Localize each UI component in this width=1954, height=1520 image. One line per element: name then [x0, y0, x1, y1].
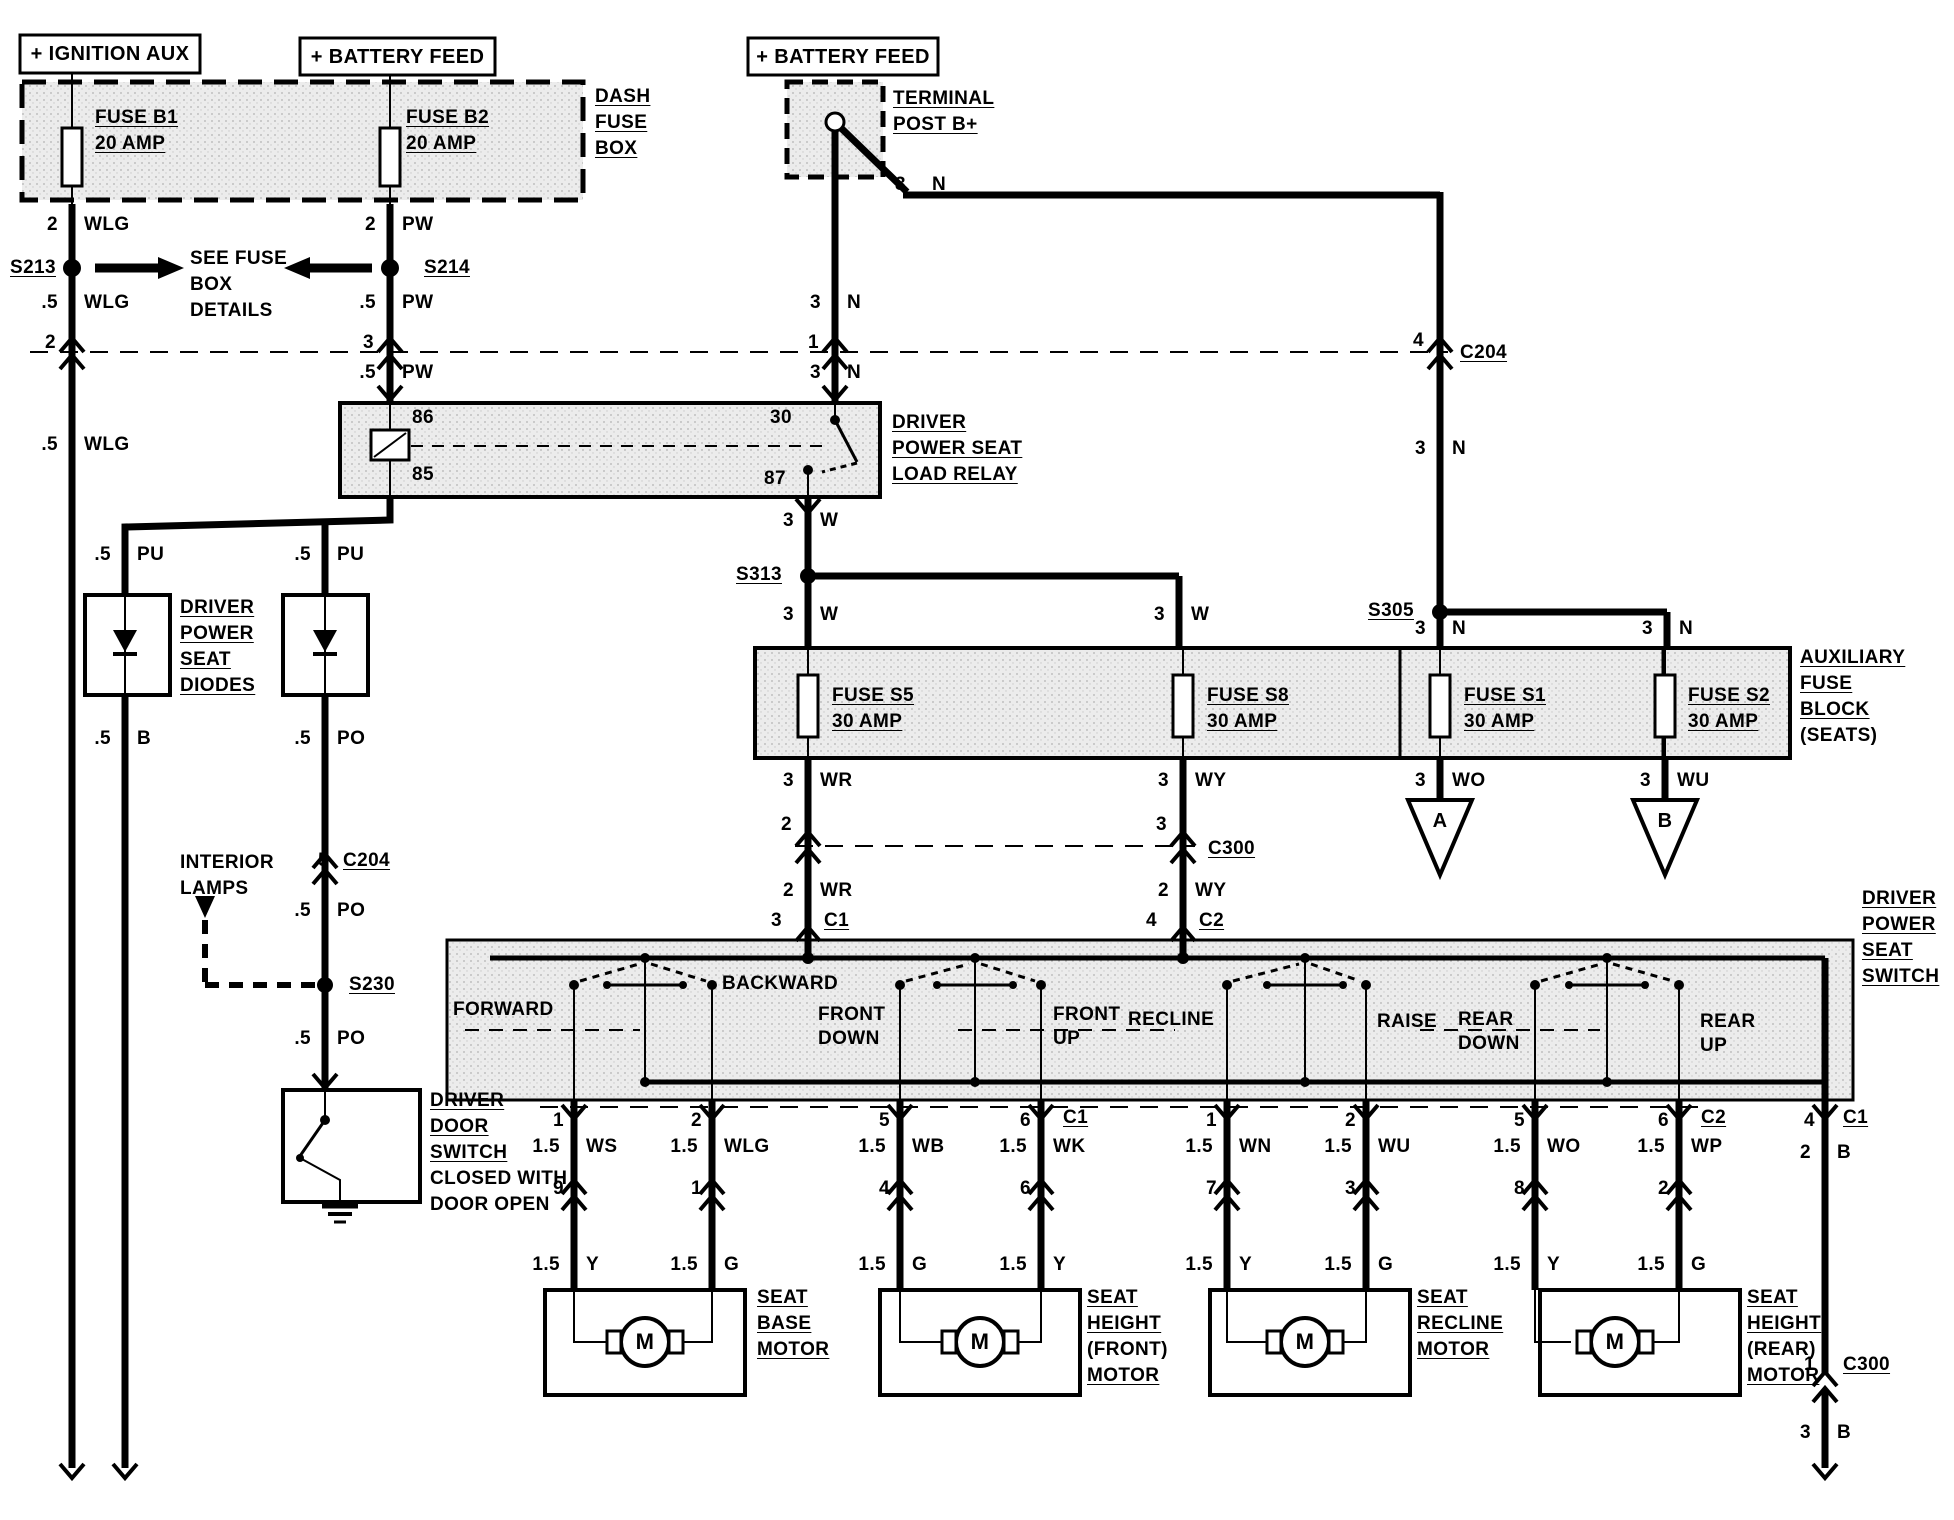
connector-c1-top: C1 [824, 908, 849, 934]
battery-feed-source-1: + BATTERY FEED [300, 38, 495, 75]
connector-c204: C204 [1460, 340, 1507, 366]
pin-b-c300: 1 [1775, 1352, 1815, 1378]
motor-3-symbol: M [1291, 1329, 1319, 1355]
wire-label: 1.5Y [945, 1252, 1066, 1278]
pin-c2-1: 1 [1177, 1108, 1217, 1134]
splice-s214: S214 [424, 255, 470, 281]
motor-2-symbol: M [966, 1329, 994, 1355]
interior-lamps-label: INTERIOR LAMPS [180, 850, 274, 902]
pin-c1-1: 1 [524, 1108, 564, 1134]
wire-label: 3WR [712, 768, 852, 794]
pin-c1-top: 3 [742, 908, 782, 934]
wire-label: 1.5WLG [616, 1134, 770, 1160]
relay-pin-87: 87 [764, 466, 786, 492]
wire-label: 1.5G [1583, 1252, 1706, 1278]
wire-label: 1.5Y [1439, 1252, 1560, 1278]
connector-c1-bottom: C1 [1063, 1105, 1088, 1131]
relay-pin-85: 85 [412, 462, 434, 488]
wire-label: 3WY [1087, 768, 1226, 794]
switch-pos-recline: RECLINE [1128, 1008, 1223, 1032]
wire-label: 3W [712, 602, 838, 628]
pin-c2-5: 5 [1485, 1108, 1525, 1134]
fuse-s2-label: FUSE S2 30 AMP [1688, 683, 1770, 735]
wire-label: .5PO [229, 1026, 365, 1052]
relay-label: DRIVER POWER SEAT LOAD RELAY [892, 410, 1022, 488]
pin-mid-4: 4 [850, 1176, 890, 1202]
wire-label: 3N [739, 360, 861, 386]
wire-label: 1.5WB [804, 1134, 944, 1160]
pin-c2-6: 6 [1629, 1108, 1669, 1134]
wire-label: 1.5WU [1270, 1134, 1410, 1160]
pin-mid-8: 8 [1485, 1176, 1525, 1202]
wire-label: .5WLG [0, 432, 130, 458]
fuse-s5-label: FUSE S5 30 AMP [832, 683, 914, 735]
connector-c300: C300 [1208, 836, 1255, 862]
wire-label: .5PW [294, 290, 433, 316]
wire-label: 3N [1344, 616, 1466, 642]
wire-label: 1.5WK [945, 1134, 1085, 1160]
switch-pos-raise: RAISE [1377, 1010, 1447, 1034]
splice-s230: S230 [349, 972, 395, 998]
pin-c300-wr: 2 [752, 812, 792, 838]
pin-c1-6: 6 [991, 1108, 1031, 1134]
diodes-label: DRIVER POWER SEAT DIODES [180, 595, 255, 699]
wire-label: 1.5WS [478, 1134, 617, 1160]
switch-pos-front-up: FRONT UP [1053, 1003, 1123, 1051]
pin-mid-6: 6 [991, 1176, 1031, 1202]
wire-label: 3N [1571, 616, 1693, 642]
fuse-s1-label: FUSE S1 30 AMP [1464, 683, 1546, 735]
aux-fuse-block-label: AUXILIARY FUSE BLOCK (SEATS) [1800, 645, 1905, 749]
wire-label: 2WY [1087, 878, 1226, 904]
connector-c1-far: C1 [1843, 1105, 1868, 1131]
wire-label: 3WU [1569, 768, 1709, 794]
wire-label: 2WR [712, 878, 852, 904]
see-fuse-note: SEE FUSE BOX DETAILS [190, 246, 287, 324]
connector-c2-top: C2 [1199, 908, 1224, 934]
ignition-aux-source: + IGNITION AUX [20, 35, 200, 73]
wire-label: 2PW [294, 212, 433, 238]
wire-label: 2B [1729, 1140, 1851, 1166]
splice-s313: S313 [736, 562, 782, 588]
motor-2-label: SEAT HEIGHT (FRONT) MOTOR [1087, 1285, 1168, 1389]
connector-c204-lamp: C204 [343, 848, 390, 874]
pin-c2-2: 2 [1316, 1108, 1356, 1134]
wire-label: 3WO [1344, 768, 1486, 794]
wire-label: 2WLG [0, 212, 130, 238]
seat-switch-label: DRIVER POWER SEAT SWITCH [1862, 886, 1939, 990]
battery-feed-source-2: + BATTERY FEED [748, 38, 938, 75]
pin-c204-n-right: 4 [1384, 328, 1424, 354]
wire-label: .5PW [294, 360, 433, 386]
pin-mid-9: 9 [524, 1176, 564, 1202]
motor-1-label: SEAT BASE MOTOR [757, 1285, 829, 1363]
pin-c204-wlg: 2 [16, 330, 56, 356]
wire-label: 1.5Y [478, 1252, 599, 1278]
wire-label: 1.5WO [1439, 1134, 1581, 1160]
switch-pos-front-down: FRONT DOWN [818, 1003, 896, 1051]
wire-label: 1.5G [1270, 1252, 1393, 1278]
pin-mid-1: 1 [662, 1176, 702, 1202]
wire-label: 3N [824, 172, 946, 198]
wire-label: .5PU [29, 542, 164, 568]
wire-label: 1.5WN [1131, 1134, 1271, 1160]
wire-label: .5PO [229, 726, 365, 752]
wire-label: 1.5Y [1131, 1252, 1252, 1278]
triangle-ref-b: B [1653, 808, 1677, 834]
pin-c1-5: 5 [850, 1108, 890, 1134]
motor-4-symbol: M [1601, 1329, 1629, 1355]
switch-pos-rear-down: REAR DOWN [1458, 1008, 1528, 1056]
wire-label: .5PO [229, 898, 365, 924]
triangle-ref-a: A [1428, 808, 1452, 834]
wire-label: 1.5G [616, 1252, 739, 1278]
pin-c300-wy: 3 [1127, 812, 1167, 838]
switch-pos-rear-up: REAR UP [1700, 1010, 1760, 1058]
pin-c204-n: 1 [779, 330, 819, 356]
fuse-s8-label: FUSE S8 30 AMP [1207, 683, 1289, 735]
wire-label: 3W [712, 508, 838, 534]
motor-3-label: SEAT RECLINE MOTOR [1417, 1285, 1503, 1363]
pin-po-c204: 5 [289, 848, 329, 874]
wire-label: .5PU [229, 542, 364, 568]
connector-c300-bottom: C300 [1843, 1352, 1890, 1378]
connector-c2-bottom: C2 [1701, 1105, 1726, 1131]
terminal-post-label: TERMINAL POST B+ [893, 86, 994, 138]
dash-fuse-box-label: DASH FUSE BOX [595, 84, 650, 162]
pin-c2-top: 4 [1117, 908, 1157, 934]
switch-pos-backward: BACKWARD [722, 972, 842, 996]
pin-c1-2: 2 [662, 1108, 702, 1134]
wire-label: .5WLG [0, 290, 130, 316]
pin-c1-far: 4 [1775, 1108, 1815, 1134]
wire-label: 1.5G [804, 1252, 927, 1278]
wire-label: 3W [1083, 602, 1209, 628]
relay-pin-86: 86 [412, 405, 434, 431]
pin-c204-pw: 3 [334, 330, 374, 356]
pin-mid-3: 3 [1316, 1176, 1356, 1202]
fuse-b2-label: FUSE B2 20 AMP [406, 105, 489, 157]
wire-label: 3N [739, 290, 861, 316]
wiring-diagram-page: + IGNITION AUX + BATTERY FEED + BATTERY … [0, 0, 1954, 1520]
pin-mid-7: 7 [1177, 1176, 1217, 1202]
fuse-b1-label: FUSE B1 20 AMP [95, 105, 178, 157]
wire-label: .5B [29, 726, 151, 752]
wire-label: 3N [1344, 436, 1466, 462]
pin-mid-2: 2 [1629, 1176, 1669, 1202]
motor-1-symbol: M [631, 1329, 659, 1355]
wire-label: 1.5WP [1583, 1134, 1722, 1160]
splice-s213: S213 [10, 255, 56, 281]
switch-pos-forward: FORWARD [453, 998, 553, 1022]
wire-label: 3B [1729, 1420, 1851, 1446]
relay-pin-30: 30 [770, 405, 792, 431]
